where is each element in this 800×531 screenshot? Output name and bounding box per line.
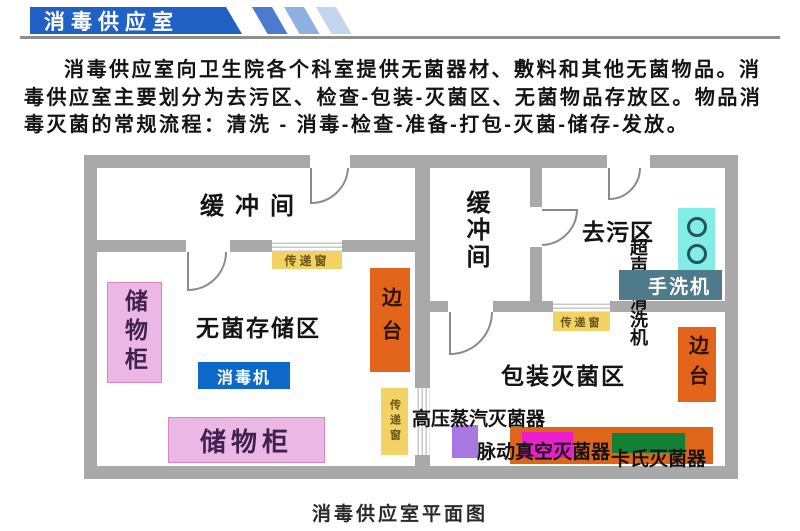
room-label-buffer-middle: 缓冲间 xyxy=(458,190,493,271)
room-label-buffer-left: 缓冲间 xyxy=(200,186,305,221)
banner-stripe-icon xyxy=(252,7,288,34)
transfer-window-label: 传递窗 xyxy=(553,312,610,331)
header-divider xyxy=(20,36,780,39)
header-banner: 消毒供应室 xyxy=(30,7,242,34)
pulse-vacuum-label: 脉动真空灭菌器 xyxy=(477,437,610,464)
intro-line: 毒供应室主要划分为去污区、检查-包装-灭菌区、无菌物品存放区。物品消 xyxy=(24,85,782,113)
intro-paragraph: 消毒供应室向卫生院各个科室提供无菌器材、敷料和其他无菌物品。消 毒供应室主要划分… xyxy=(24,57,782,140)
disinfector-machine: 消毒机 xyxy=(198,362,290,389)
sink-basin-icon xyxy=(687,244,707,264)
door-decontamination-top xyxy=(609,168,640,199)
storage-cabinet-bottom: 储物柜 xyxy=(168,417,325,463)
side-table-left: 边台 xyxy=(370,268,410,372)
wall-buffer-divider xyxy=(230,240,272,252)
hand-washer: 手洗机 xyxy=(619,270,722,300)
ultrasonic-cleaner-unit xyxy=(678,208,715,272)
door-buffer-left-top xyxy=(311,168,348,203)
side-table-right: 边台 xyxy=(678,327,716,402)
wall-packaging-top xyxy=(430,301,448,312)
room-label-sterile-storage: 无菌存储区 xyxy=(196,309,321,343)
door-buffer-to-decontamination xyxy=(542,210,577,245)
door-buffer-to-storage xyxy=(188,252,226,290)
wall-buffer-divider xyxy=(97,240,186,252)
wall-right xyxy=(725,155,738,479)
wall-mid-vertical xyxy=(530,168,542,207)
wall-packaging-top xyxy=(493,301,553,312)
transfer-window-label: 传递窗 xyxy=(381,388,408,455)
page-title: 消毒供应室 xyxy=(44,6,179,36)
banner-stripe-icon xyxy=(284,7,320,34)
transfer-window-glass xyxy=(553,301,610,312)
transfer-window-label: 传递窗 xyxy=(272,251,342,269)
autoclave-label: 高压蒸汽灭菌器 xyxy=(412,404,545,431)
page: 消毒供应室 消毒供应室向卫生院各个科室提供无菌器材、敷料和其他无菌物品。消 毒供… xyxy=(0,0,800,531)
intro-line: 消毒供应室向卫生院各个科室提供无菌器材、敷料和其他无菌物品。消 xyxy=(24,57,782,85)
figure-caption: 消毒供应室平面图 xyxy=(0,499,800,526)
wall-buffer-divider xyxy=(342,240,415,252)
wall-center-vertical xyxy=(415,168,430,388)
door-buffer-to-packaging xyxy=(450,312,492,354)
wall-center-vertical xyxy=(415,455,430,466)
wall-left xyxy=(84,155,97,479)
wall-top xyxy=(350,155,607,168)
room-label-packaging: 包装灭菌区 xyxy=(501,357,626,391)
intro-line: 毒灭菌的常规流程：清洗 - 消毒-检查-准备-打包-灭菌-储存-发放。 xyxy=(24,112,782,140)
wall-top xyxy=(84,155,310,168)
banner-stripe-icon xyxy=(316,7,352,34)
cassette-sterilizer-label: 卡氏灭菌器 xyxy=(611,444,706,471)
sink-basin-icon xyxy=(687,217,707,237)
storage-cabinet-left: 储物柜 xyxy=(107,282,162,383)
